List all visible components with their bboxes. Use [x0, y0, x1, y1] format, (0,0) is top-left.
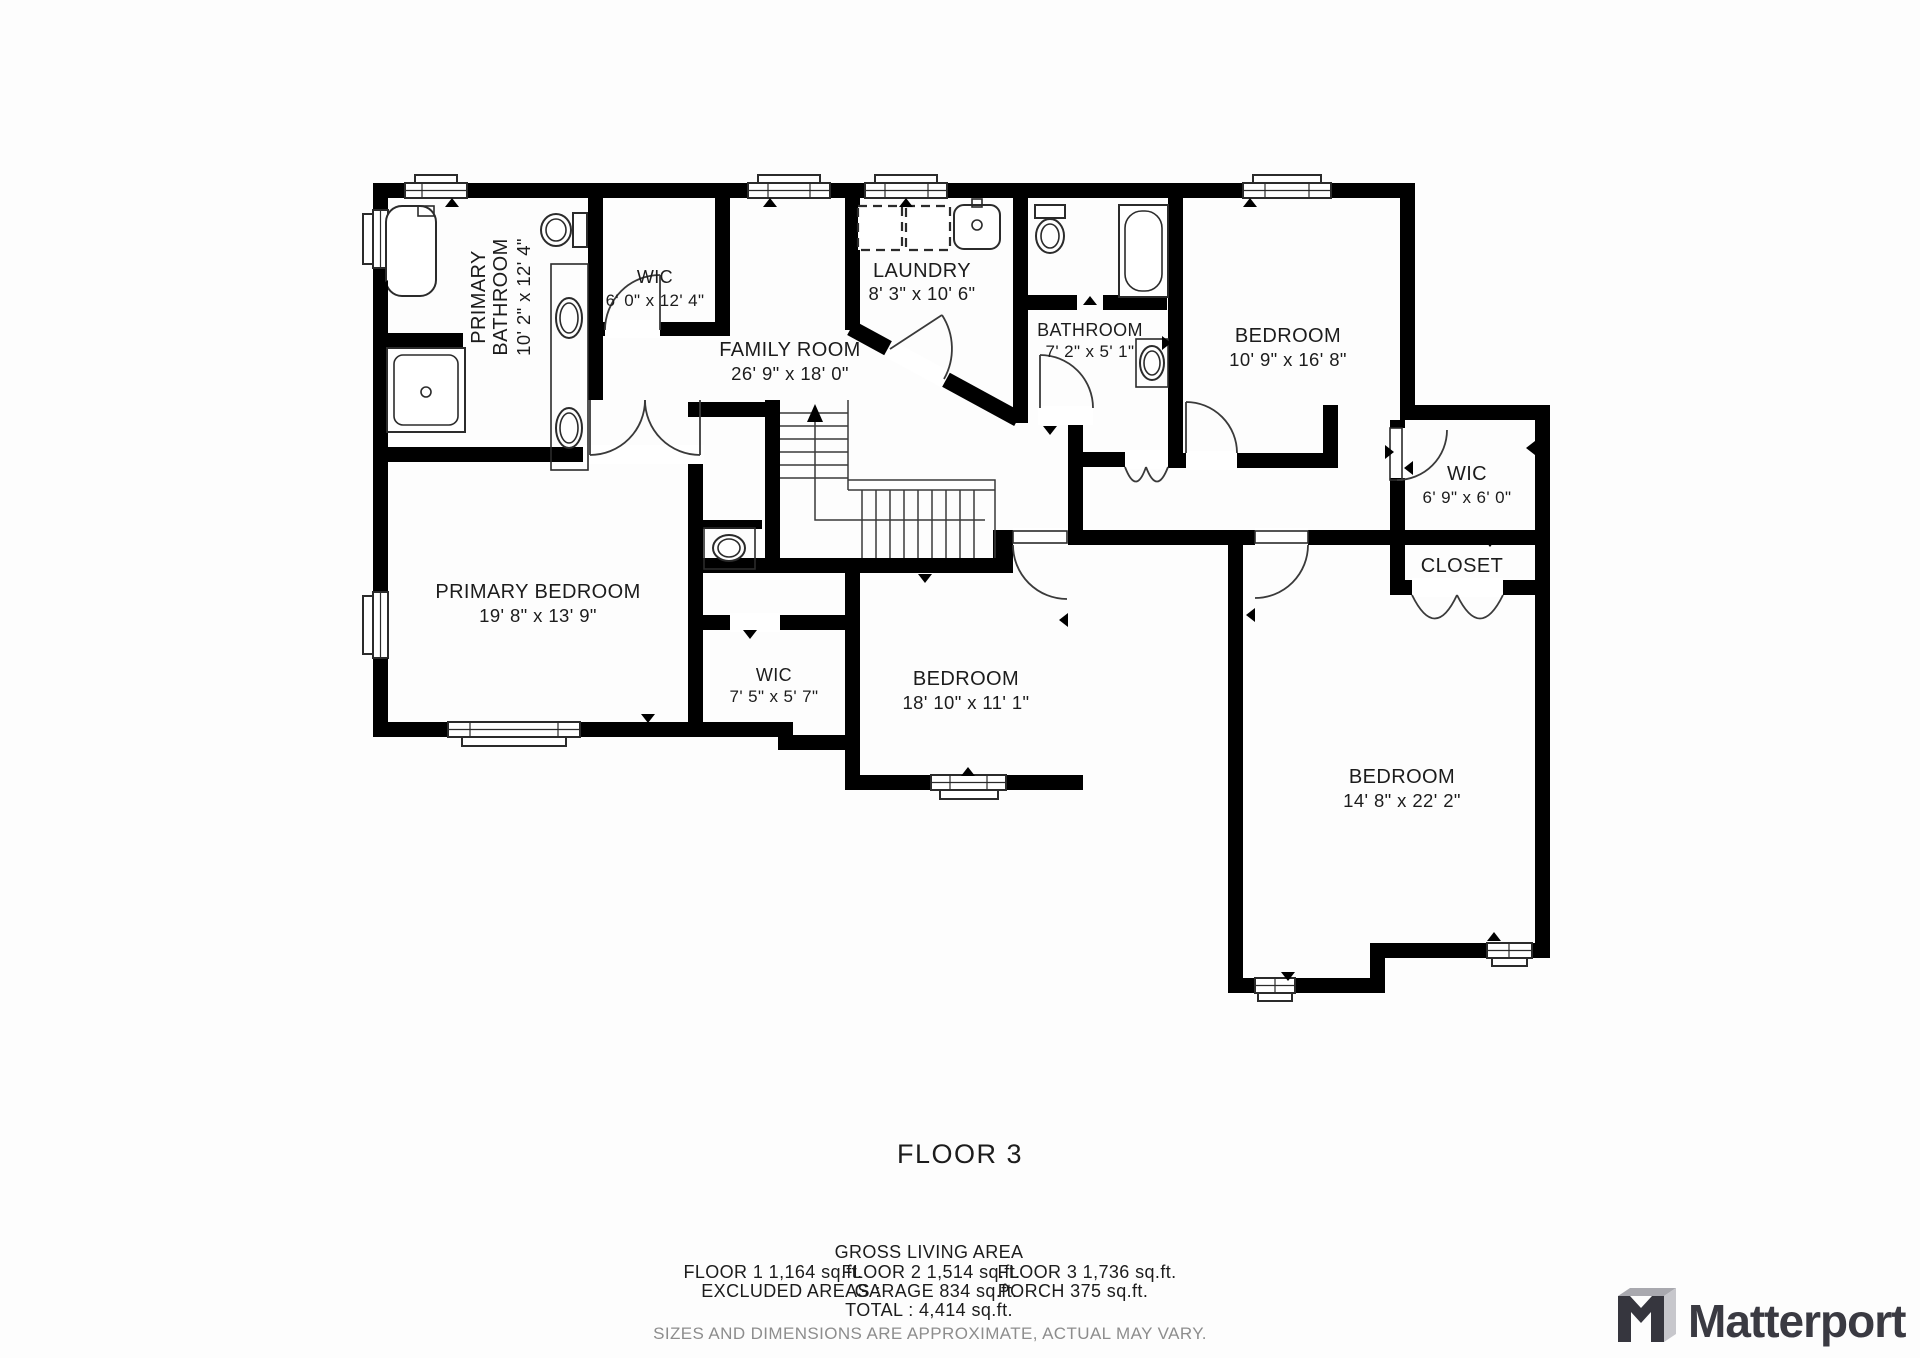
room-dims: 10' 2" x 12' 4": [513, 238, 534, 356]
matterport-wordmark: Matterport: [1688, 1295, 1906, 1347]
shower-fixture: [387, 348, 465, 432]
room-label-bedroom-top: BEDROOM 10' 9" x 16' 8": [1229, 325, 1347, 370]
room-dims: 26' 9" x 18' 0": [731, 363, 849, 384]
bathtub-fixture: [1119, 205, 1168, 297]
laundry-sink-fixture: [954, 199, 1000, 249]
room-name: BATHROOM: [1037, 320, 1143, 340]
room-dims: 8' 3" x 10' 6": [868, 283, 975, 304]
room-dims: 18' 10" x 11' 1": [902, 692, 1029, 713]
room-name: CLOSET: [1421, 555, 1503, 577]
room-name: WIC: [637, 267, 673, 287]
room-label-primary-bedroom: PRIMARY BEDROOM 19' 8" x 13' 9": [435, 581, 640, 626]
staircase: [780, 400, 995, 558]
room-name: BEDROOM: [1349, 766, 1455, 788]
room-label-laundry: LAUNDRY 8' 3" x 10' 6": [868, 260, 975, 304]
room-label-bathroom: BATHROOM 7' 2" x 5' 1": [1037, 320, 1143, 361]
garage-area: GARAGE 834 sq.ft.: [855, 1281, 1018, 1301]
room-label-closet: CLOSET: [1421, 555, 1503, 577]
room-name: BEDROOM: [913, 668, 1019, 690]
porch-area: PORCH 375 sq.ft.: [998, 1281, 1148, 1301]
toilet-fixture: [1035, 205, 1065, 253]
area-summary: GROSS LIVING AREA FLOOR 1 1,164 sq.ft. F…: [653, 1242, 1207, 1343]
room-dims: 10' 9" x 16' 8": [1229, 349, 1347, 370]
room-dims: 6' 9" x 6' 0": [1423, 488, 1512, 507]
floor-plan-canvas: PRIMARY BATHROOM 10' 2" x 12' 4" WIC 6' …: [0, 0, 1920, 1358]
gross-living-area-title: GROSS LIVING AREA: [835, 1242, 1024, 1262]
washer-dryer-fixture: [858, 206, 950, 250]
floor-title: FLOOR 3: [897, 1139, 1023, 1169]
room-name: BATHROOM: [490, 238, 512, 355]
room-dims: 14' 8" x 22' 2": [1343, 790, 1461, 811]
room-name: FAMILY ROOM: [719, 339, 860, 361]
room-name: PRIMARY: [468, 250, 490, 344]
toilet-fixture: [541, 213, 587, 247]
floor3-area: FLOOR 3 1,736 sq.ft.: [997, 1262, 1176, 1282]
room-name: LAUNDRY: [873, 260, 971, 282]
room-label-wic-small: WIC 7' 5" x 5' 7": [730, 665, 819, 706]
room-dims: 6' 0" x 12' 4": [606, 291, 705, 310]
room-label-wic-right: WIC 6' 9" x 6' 0": [1423, 463, 1512, 507]
room-label-bedroom-middle: BEDROOM 18' 10" x 11' 1": [902, 668, 1029, 713]
floor1-area: FLOOR 1 1,164 sq.ft.: [683, 1262, 862, 1282]
room-dims: 7' 2" x 5' 1": [1046, 342, 1135, 361]
disclaimer-text: SIZES AND DIMENSIONS ARE APPROXIMATE, AC…: [653, 1324, 1207, 1343]
room-name: BEDROOM: [1235, 325, 1341, 347]
floor-plan-page: PRIMARY BATHROOM 10' 2" x 12' 4" WIC 6' …: [0, 0, 1920, 1358]
matterport-logo-icon: [1618, 1288, 1676, 1342]
room-label-wic-primary: WIC 6' 0" x 12' 4": [606, 267, 705, 310]
double-vanity-fixture: [551, 264, 588, 470]
floor2-area: FLOOR 2 1,514 sq.ft.: [841, 1262, 1020, 1282]
total-area: TOTAL : 4,414 sq.ft.: [845, 1300, 1013, 1320]
room-label-family-room: FAMILY ROOM 26' 9" x 18' 0": [719, 339, 860, 384]
room-name: WIC: [1447, 463, 1487, 485]
room-dims: 7' 5" x 5' 7": [730, 687, 819, 706]
room-dims: 19' 8" x 13' 9": [479, 605, 597, 626]
room-label-primary-bathroom: PRIMARY BATHROOM 10' 2" x 12' 4": [468, 238, 534, 356]
bathtub-fixture: [386, 206, 436, 296]
room-name: WIC: [756, 665, 792, 685]
room-label-bedroom-large: BEDROOM 14' 8" x 22' 2": [1343, 766, 1461, 811]
matterport-logo: Matterport: [1618, 1288, 1906, 1347]
room-name: PRIMARY BEDROOM: [435, 581, 640, 603]
